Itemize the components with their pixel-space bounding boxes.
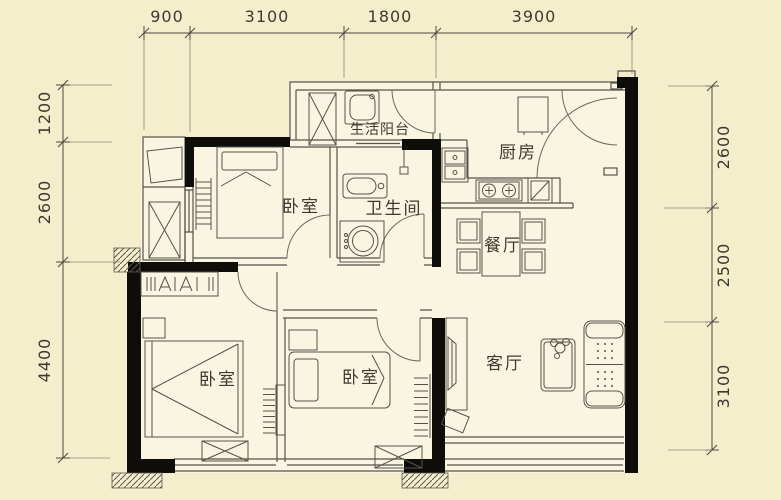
label-bedroom-middle: 卧室 — [342, 368, 380, 388]
dim-right-2: 2500 — [714, 243, 733, 288]
dim-left-2: 2600 — [35, 180, 54, 225]
dim-left-3: 4400 — [35, 338, 54, 383]
label-dining-room: 餐厅 — [484, 236, 522, 256]
label-bathroom: 卫生间 — [366, 199, 423, 219]
dim-left-1: 1200 — [35, 91, 54, 136]
label-bedroom-left: 卧室 — [199, 370, 237, 390]
dim-top-1: 900 — [150, 7, 184, 26]
dim-top-2: 3100 — [245, 7, 290, 26]
label-kitchen: 厨房 — [499, 143, 537, 163]
label-bedroom-top: 卧室 — [282, 197, 320, 217]
label-living-room: 客厅 — [486, 354, 524, 374]
dim-top-4: 3900 — [512, 7, 557, 26]
dim-right-3: 3100 — [714, 364, 733, 409]
dim-right-1: 2600 — [714, 125, 733, 170]
dim-top-3: 1800 — [368, 7, 413, 26]
floor-plan-stage: 生活阳台 厨房 卧室 卫生间 餐厅 客厅 卧室 卧室 — [0, 0, 781, 500]
floor-plan-svg: 生活阳台 厨房 卧室 卫生间 餐厅 客厅 卧室 卧室 — [0, 0, 781, 500]
label-service-balcony: 生活阳台 — [350, 122, 410, 138]
